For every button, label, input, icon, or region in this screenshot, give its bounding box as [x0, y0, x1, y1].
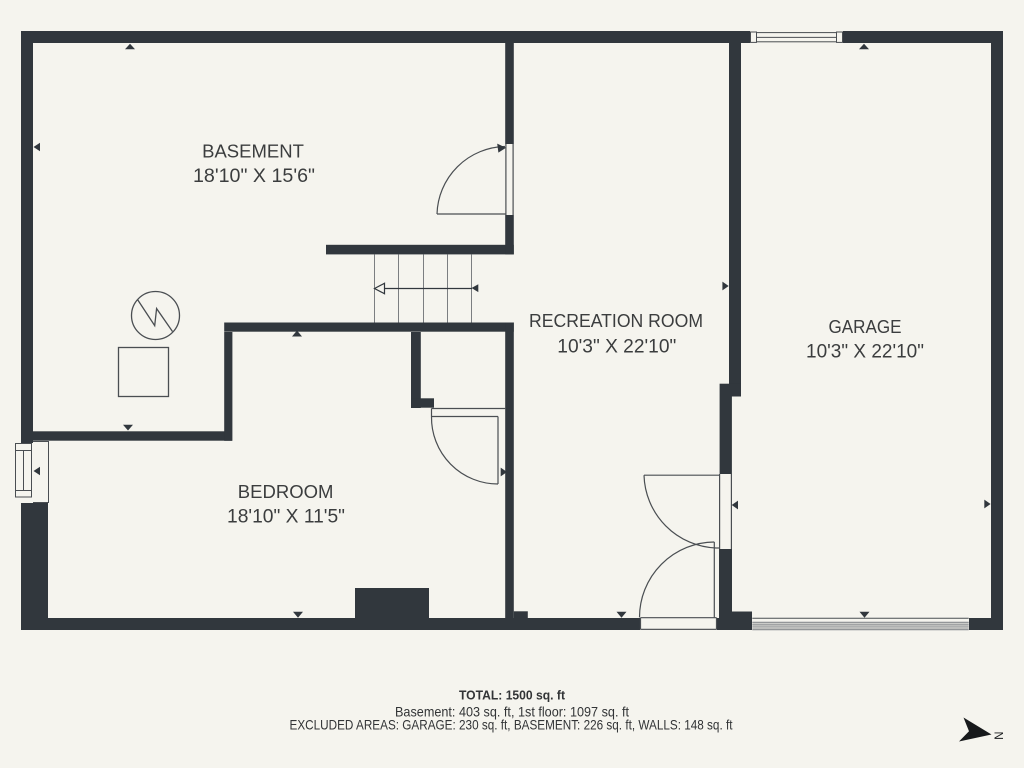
svg-text:EXCLUDED AREAS: GARAGE: 230 sq: EXCLUDED AREAS: GARAGE: 230 sq. ft, BASE… — [290, 717, 733, 733]
svg-text:RECREATION ROOM: RECREATION ROOM — [529, 310, 703, 331]
svg-text:18'10" X 15'6": 18'10" X 15'6" — [193, 165, 315, 187]
svg-text:10'3" X 22'10": 10'3" X 22'10" — [806, 340, 924, 362]
svg-text:GARAGE: GARAGE — [829, 316, 902, 337]
svg-text:BEDROOM: BEDROOM — [238, 481, 334, 502]
svg-text:TOTAL: 1500 sq. ft: TOTAL: 1500 sq. ft — [459, 689, 566, 703]
svg-text:N: N — [992, 732, 1004, 740]
svg-text:18'10" X 11'5": 18'10" X 11'5" — [227, 505, 345, 527]
svg-text:10'3" X 22'10": 10'3" X 22'10" — [557, 335, 676, 357]
svg-text:BASEMENT: BASEMENT — [202, 141, 304, 162]
